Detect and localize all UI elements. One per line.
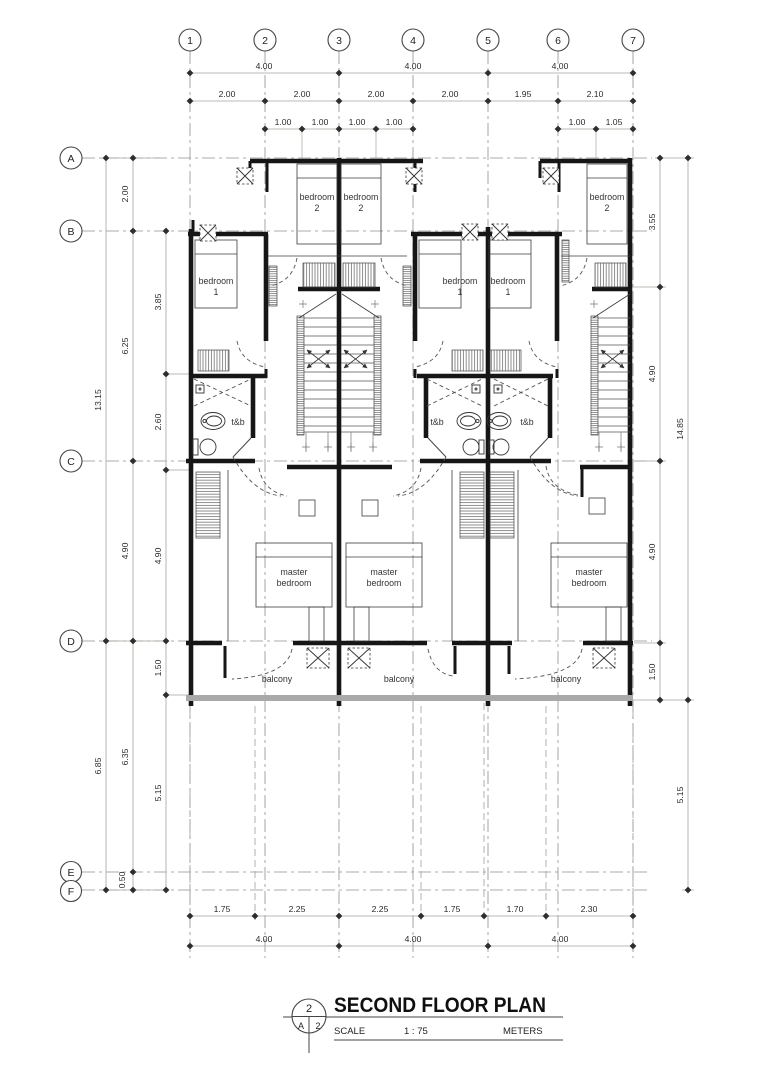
grid-row-label: E bbox=[67, 867, 74, 879]
dresser bbox=[309, 607, 621, 641]
closet-hatch bbox=[343, 263, 375, 287]
room-label-master: master bbox=[576, 567, 603, 577]
grid-col-label: 2 bbox=[262, 35, 268, 47]
sheet-ref-right: 2 bbox=[315, 1021, 320, 1031]
grid-row-label: C bbox=[67, 456, 75, 468]
room-label-bedroom1: bedroom bbox=[199, 276, 234, 286]
dim-label: 4.90 bbox=[120, 542, 130, 559]
door-swings bbox=[232, 258, 587, 679]
grid-bubble-col-5: 5 bbox=[477, 29, 499, 51]
room-label-bedroom2: 2 bbox=[359, 203, 364, 213]
grid-bubble-col-6: 6 bbox=[547, 29, 569, 51]
grid-col-label: 5 bbox=[485, 35, 491, 47]
room-label-bedroom1: 1 bbox=[458, 287, 463, 297]
closet-hatch bbox=[303, 263, 335, 287]
grid-row-label: F bbox=[68, 886, 74, 898]
dim-label: 2.30 bbox=[581, 904, 598, 914]
grid-bubble-row-A: A bbox=[60, 147, 82, 169]
dim-label: 1.50 bbox=[647, 663, 657, 680]
room-label-master: bedroom bbox=[277, 578, 312, 588]
dim-label: 4.00 bbox=[552, 934, 569, 944]
grid-col-label: 6 bbox=[555, 35, 561, 47]
sheet-number: 2 bbox=[306, 1003, 312, 1015]
room-label-bedroom2: bedroom bbox=[344, 192, 379, 202]
room-label-master: bedroom bbox=[572, 578, 607, 588]
grid-lines bbox=[82, 51, 652, 958]
dim-label: 1.50 bbox=[153, 659, 163, 676]
dim-label: 2.00 bbox=[120, 185, 130, 202]
grid-col-label: 7 bbox=[630, 35, 636, 47]
closet-hatch bbox=[196, 472, 220, 538]
closet-hatch bbox=[198, 350, 229, 371]
grid-col-label: 3 bbox=[336, 35, 342, 47]
dim-label: 1.00 bbox=[349, 117, 366, 127]
title-block: 2 A 2 SECOND FLOOR PLAN SCALE 1 : 75 MET… bbox=[283, 993, 563, 1053]
room-label-bedroom2: 2 bbox=[315, 203, 320, 213]
grid-row-label: D bbox=[67, 636, 75, 648]
dim-label: 5.15 bbox=[675, 786, 685, 803]
dim-label: 13.15 bbox=[93, 389, 103, 411]
grid-col-label: 1 bbox=[187, 35, 193, 47]
shelf-band bbox=[269, 266, 277, 306]
dim-label: 2.25 bbox=[372, 904, 389, 914]
grid-bubble-row-C: C bbox=[60, 450, 82, 472]
stair-railing bbox=[374, 316, 381, 435]
dim-label: 4.00 bbox=[405, 61, 422, 71]
dim-label: 2.60 bbox=[153, 413, 163, 430]
room-labels: bedroom 2 bedroom 2 bedroom 2 bedroom 1 … bbox=[199, 192, 625, 684]
planter-box bbox=[593, 648, 615, 668]
dim-label: 1.75 bbox=[444, 904, 461, 914]
closet-hatch bbox=[460, 472, 484, 538]
room-label-tb: t&b bbox=[520, 417, 533, 427]
room-label-balcony: balcony bbox=[384, 674, 415, 684]
room-label-bedroom2: bedroom bbox=[300, 192, 335, 202]
dim-label: 1.00 bbox=[312, 117, 329, 127]
planter-box bbox=[348, 648, 370, 668]
dim-label: 0.50 bbox=[117, 871, 127, 888]
sheet-ref-left: A bbox=[298, 1021, 304, 1031]
grid-bubble-row-F: F bbox=[61, 881, 82, 902]
planter-box bbox=[307, 648, 329, 668]
closet-hatch bbox=[452, 350, 483, 371]
room-label-master: master bbox=[281, 567, 308, 577]
room-label-bedroom1: bedroom bbox=[443, 276, 478, 286]
grid-bubble-col-3: 3 bbox=[328, 29, 350, 51]
room-label-bedroom2: bedroom bbox=[590, 192, 625, 202]
grid-bubble-col-7: 7 bbox=[622, 29, 644, 51]
grid-bubble-row-B: B bbox=[60, 220, 82, 242]
door-leaves bbox=[233, 438, 548, 457]
grid-bubble-row-D: D bbox=[60, 630, 82, 652]
dim-label: 2.00 bbox=[294, 89, 311, 99]
grid-col-label: 4 bbox=[410, 35, 416, 47]
room-label-tb: t&b bbox=[231, 417, 244, 427]
closet-hatch bbox=[595, 263, 626, 287]
dim-label: 2.00 bbox=[219, 89, 236, 99]
room-label-tb: t&b bbox=[430, 417, 443, 427]
grid-bubble-col-1: 1 bbox=[179, 29, 201, 51]
room-label-bedroom1: bedroom bbox=[491, 276, 526, 286]
grid-row-label: B bbox=[67, 226, 74, 238]
dim-label: 4.00 bbox=[256, 934, 273, 944]
drawing-title: SECOND FLOOR PLAN bbox=[334, 993, 546, 1017]
bed-master bbox=[256, 543, 627, 607]
dim-label: 6.85 bbox=[93, 757, 103, 774]
stair-railing bbox=[297, 316, 304, 435]
scale-label: SCALE bbox=[334, 1026, 365, 1037]
floor-plan-canvas: 1 2 3 4 5 6 7 A B C D E F 4.00 4.00 4. bbox=[0, 0, 768, 1073]
grid-bubble-col-2: 2 bbox=[254, 29, 276, 51]
dim-label: 4.00 bbox=[552, 61, 569, 71]
closet-hatch bbox=[490, 472, 514, 538]
dim-label: 1.95 bbox=[515, 89, 532, 99]
closet-hatches bbox=[196, 240, 626, 538]
dim-label: 3.55 bbox=[647, 213, 657, 230]
grid-row-label: A bbox=[67, 153, 74, 165]
dim-label: 1.00 bbox=[275, 117, 292, 127]
dim-label: 4.90 bbox=[153, 547, 163, 564]
dim-label: 5.15 bbox=[153, 784, 163, 801]
dim-label: 4.00 bbox=[256, 61, 273, 71]
dim-label: 1.00 bbox=[569, 117, 586, 127]
lavatory bbox=[201, 413, 511, 430]
shelf-band bbox=[562, 240, 569, 282]
dim-label: 4.00 bbox=[405, 934, 422, 944]
units-label: METERS bbox=[503, 1026, 543, 1037]
room-label-bedroom2: 2 bbox=[605, 203, 610, 213]
dim-label: 2.00 bbox=[368, 89, 385, 99]
shower bbox=[194, 379, 548, 406]
dim-label: 3.85 bbox=[153, 293, 163, 310]
room-label-bedroom1: 1 bbox=[214, 287, 219, 297]
room-label-master: master bbox=[371, 567, 398, 577]
dim-label: 1.75 bbox=[214, 904, 231, 914]
scale-value: 1 : 75 bbox=[404, 1026, 428, 1037]
dim-label: 2.00 bbox=[442, 89, 459, 99]
grid-bubble-col-4: 4 bbox=[402, 29, 424, 51]
drawing-sheet: 1 2 3 4 5 6 7 A B C D E F 4.00 4.00 4. bbox=[0, 0, 768, 1073]
room-label-balcony: balcony bbox=[262, 674, 293, 684]
stair-railing bbox=[591, 316, 598, 435]
dim-label: 14.85 bbox=[675, 418, 685, 440]
shelf-band bbox=[403, 266, 411, 306]
dim-label: 6.25 bbox=[120, 337, 130, 354]
dim-label: 2.10 bbox=[587, 89, 604, 99]
dim-label: 6.35 bbox=[120, 748, 130, 765]
column-bubbles: 1 2 3 4 5 6 7 bbox=[179, 29, 644, 51]
column-markers bbox=[200, 168, 559, 241]
row-bubbles: A B C D E F bbox=[60, 147, 82, 902]
dim-label: 4.90 bbox=[647, 543, 657, 560]
dim-label: 1.00 bbox=[386, 117, 403, 127]
room-label-master: bedroom bbox=[367, 578, 402, 588]
dim-label: 1.05 bbox=[606, 117, 623, 127]
dim-label: 2.25 bbox=[289, 904, 306, 914]
dim-label: 4.90 bbox=[647, 365, 657, 382]
room-label-bedroom1: 1 bbox=[506, 287, 511, 297]
dim-label: 1.70 bbox=[507, 904, 524, 914]
grid-bubble-row-E: E bbox=[61, 862, 82, 883]
closet-hatch bbox=[490, 350, 521, 371]
room-label-balcony: balcony bbox=[551, 674, 582, 684]
planter-boxes bbox=[307, 648, 615, 668]
